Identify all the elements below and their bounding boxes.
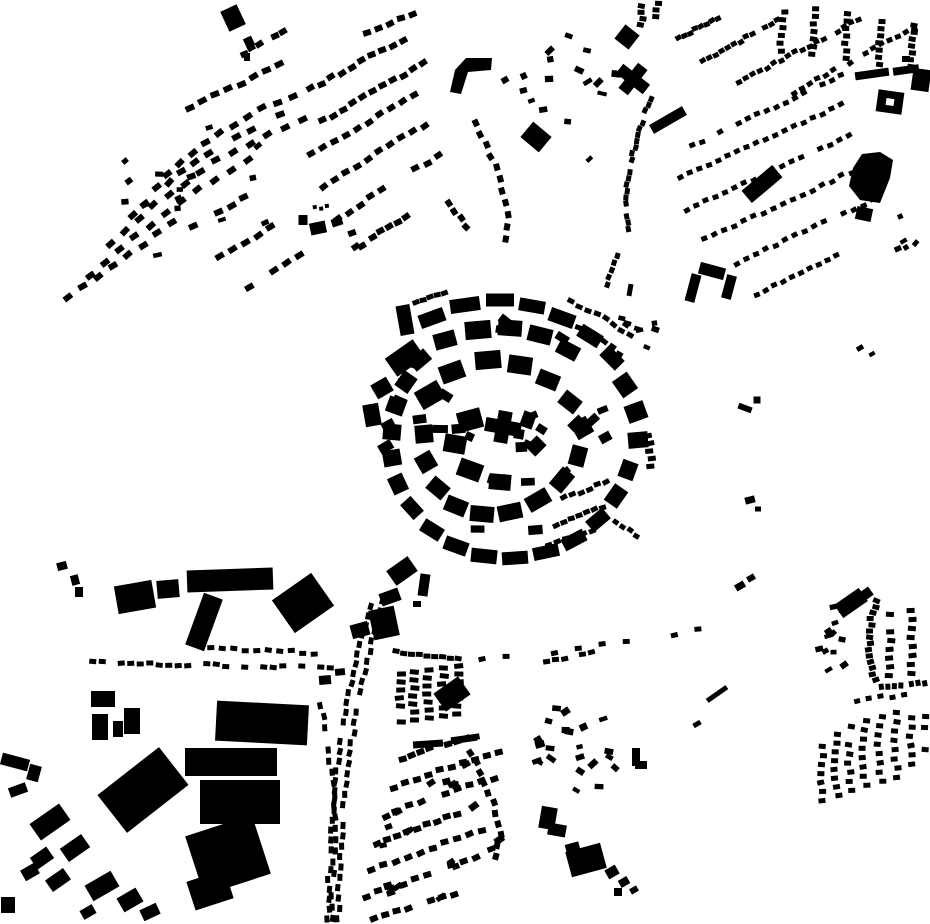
building (337, 69, 347, 78)
building (451, 734, 478, 745)
building (604, 483, 629, 509)
building (535, 368, 561, 391)
building (810, 36, 818, 42)
building (744, 495, 755, 504)
building (799, 192, 806, 199)
building (568, 491, 576, 498)
building (330, 859, 335, 866)
building (860, 774, 867, 779)
building (712, 52, 720, 59)
building (396, 687, 405, 692)
building (845, 742, 853, 748)
building (240, 238, 251, 248)
building (326, 895, 332, 903)
building (375, 226, 385, 235)
building (139, 903, 160, 921)
building (874, 741, 881, 747)
building (454, 671, 463, 676)
building (353, 660, 360, 668)
building (824, 257, 831, 264)
building (788, 158, 795, 165)
building (241, 664, 248, 669)
building (243, 155, 254, 165)
building (902, 56, 910, 62)
building (583, 47, 592, 53)
building (423, 699, 432, 705)
building (599, 345, 624, 370)
building (812, 14, 819, 19)
building (624, 188, 630, 195)
building (452, 711, 461, 716)
building (350, 670, 356, 678)
building (177, 187, 183, 192)
building (909, 725, 916, 730)
building (597, 405, 609, 415)
building (906, 733, 913, 739)
building (872, 604, 880, 611)
building (855, 68, 890, 81)
building (564, 728, 574, 736)
building (560, 519, 568, 526)
building (833, 784, 841, 790)
building (867, 640, 875, 646)
building (724, 152, 731, 159)
building (200, 138, 211, 147)
building (635, 132, 641, 139)
building (497, 319, 522, 337)
building (831, 620, 839, 626)
building (340, 832, 346, 840)
building (902, 28, 910, 35)
building (773, 103, 781, 110)
building (819, 789, 826, 794)
building (205, 124, 213, 131)
building (305, 83, 315, 92)
building (567, 297, 575, 305)
building (602, 314, 611, 322)
building (875, 40, 883, 46)
building (808, 51, 815, 57)
building (572, 787, 580, 794)
building (414, 450, 439, 475)
building (885, 646, 893, 652)
building (634, 138, 640, 145)
building (893, 719, 901, 725)
building (626, 284, 633, 297)
building (439, 654, 446, 660)
building (608, 266, 615, 273)
building (230, 646, 237, 652)
building (866, 659, 874, 666)
building (502, 235, 509, 243)
building (908, 43, 916, 49)
building (746, 573, 756, 582)
buildings-layer (0, 1, 930, 923)
building (215, 701, 309, 746)
building (358, 677, 365, 685)
building (416, 748, 426, 756)
building (623, 639, 630, 644)
building (368, 87, 378, 96)
building (831, 650, 837, 655)
building (121, 157, 129, 165)
building (876, 48, 883, 53)
building (875, 54, 883, 60)
building (734, 580, 746, 591)
building (8, 782, 28, 798)
building (710, 231, 718, 238)
building (718, 47, 726, 54)
building (356, 56, 366, 65)
building (464, 320, 491, 340)
building (720, 227, 727, 234)
building (262, 130, 273, 140)
building (706, 685, 729, 703)
building (185, 103, 196, 112)
building (575, 512, 583, 519)
building (575, 766, 585, 776)
building (200, 780, 280, 824)
building (400, 496, 424, 520)
building (26, 764, 42, 783)
building (779, 278, 787, 285)
building (799, 47, 807, 54)
building (598, 431, 613, 445)
building (298, 663, 305, 668)
building (413, 739, 443, 748)
building (396, 14, 405, 22)
building (418, 58, 428, 67)
building (272, 573, 334, 633)
building (99, 659, 106, 664)
building (907, 742, 915, 748)
building (443, 494, 469, 517)
building (207, 645, 214, 650)
building (374, 24, 384, 32)
building (505, 211, 512, 219)
building (338, 863, 343, 870)
building (502, 199, 510, 207)
building (781, 236, 789, 243)
building (367, 602, 374, 610)
building (419, 518, 445, 542)
building (503, 654, 510, 659)
building (346, 749, 353, 757)
building (341, 718, 346, 725)
building (689, 142, 696, 149)
building (891, 747, 898, 753)
building (604, 865, 619, 880)
building (412, 299, 420, 306)
building (846, 751, 854, 757)
building (345, 689, 351, 697)
building (127, 661, 134, 666)
building (365, 191, 375, 200)
building (574, 65, 585, 74)
building (452, 835, 461, 843)
building (752, 251, 759, 258)
building (357, 688, 363, 696)
building (837, 72, 844, 79)
building (317, 115, 327, 124)
building (261, 66, 272, 75)
building (855, 206, 873, 222)
building (885, 655, 893, 661)
building (129, 231, 140, 241)
building (828, 178, 836, 185)
building (294, 250, 305, 260)
building (587, 758, 598, 769)
building (810, 29, 818, 35)
building (340, 822, 345, 829)
building (635, 761, 647, 769)
building (386, 556, 418, 586)
building (339, 843, 344, 850)
building (352, 124, 362, 134)
building (770, 205, 777, 212)
building (197, 96, 208, 105)
building (342, 791, 347, 798)
building (844, 761, 851, 766)
building (389, 784, 398, 792)
building (911, 30, 918, 36)
building (349, 621, 370, 639)
building (545, 76, 554, 83)
building (716, 128, 724, 135)
building (490, 798, 498, 807)
building (275, 110, 286, 119)
building (756, 67, 764, 74)
building (162, 169, 173, 179)
building (859, 755, 866, 760)
building (545, 745, 554, 751)
building (715, 157, 722, 164)
building (410, 685, 419, 691)
building (842, 26, 849, 31)
building (740, 179, 748, 186)
building (412, 414, 426, 424)
building (493, 410, 512, 444)
building (599, 715, 608, 722)
building (188, 148, 199, 158)
building (409, 90, 419, 99)
building (557, 390, 583, 415)
building (502, 551, 529, 566)
building (387, 472, 409, 495)
building (831, 758, 838, 763)
building (374, 109, 384, 119)
building (288, 648, 295, 653)
building (585, 486, 593, 493)
building (701, 235, 708, 242)
building (781, 9, 788, 14)
building (269, 266, 280, 276)
building (229, 121, 240, 131)
building (568, 444, 589, 467)
building (423, 675, 432, 681)
building (500, 76, 509, 85)
building (483, 140, 491, 149)
building (410, 709, 419, 715)
building (629, 885, 639, 894)
building (754, 397, 761, 404)
building (868, 351, 875, 357)
building (92, 714, 108, 740)
building (413, 601, 421, 607)
building (212, 661, 220, 667)
building (362, 893, 372, 901)
building (842, 55, 849, 61)
building (546, 754, 557, 764)
building (749, 30, 757, 37)
building (368, 606, 400, 641)
building (908, 36, 916, 42)
building (381, 911, 390, 919)
building (712, 194, 719, 201)
building (543, 659, 551, 665)
building (865, 695, 872, 701)
building (244, 53, 250, 61)
building (30, 803, 71, 840)
building (484, 789, 492, 797)
building (524, 487, 553, 513)
building (253, 648, 260, 653)
building (379, 861, 388, 869)
building (564, 118, 571, 124)
building (345, 208, 355, 218)
building (469, 505, 494, 523)
building (439, 713, 448, 719)
building (114, 580, 156, 614)
building (210, 90, 221, 99)
building (321, 712, 328, 720)
building (626, 175, 632, 182)
building (344, 770, 350, 778)
building (872, 597, 880, 604)
building (593, 481, 601, 488)
building (432, 818, 442, 827)
building (326, 72, 336, 81)
building (486, 294, 514, 307)
building (845, 132, 853, 139)
building (333, 825, 338, 832)
building (886, 664, 895, 670)
building (539, 106, 548, 113)
building (612, 518, 620, 526)
building (330, 175, 340, 184)
building (575, 646, 582, 652)
building (431, 654, 438, 659)
building (443, 433, 468, 455)
building (352, 729, 358, 737)
building (824, 666, 833, 673)
building (838, 636, 846, 643)
building (623, 200, 629, 207)
building (819, 111, 827, 118)
building (859, 746, 866, 751)
building (327, 665, 334, 670)
building (855, 16, 862, 23)
building (893, 775, 901, 781)
building (401, 212, 411, 222)
building (218, 217, 227, 223)
building (740, 217, 748, 224)
building (362, 668, 369, 676)
building (604, 748, 614, 755)
building (752, 139, 760, 146)
building (818, 181, 826, 188)
building (424, 667, 433, 673)
building (118, 660, 125, 666)
building (363, 154, 373, 164)
building (737, 403, 752, 413)
building (868, 671, 876, 677)
building (331, 807, 336, 814)
building (174, 158, 185, 169)
building (450, 207, 459, 216)
building (492, 810, 499, 818)
building (772, 132, 779, 139)
building (874, 732, 882, 738)
building (349, 679, 356, 687)
building (797, 154, 804, 161)
building (762, 287, 770, 294)
building (414, 424, 434, 444)
building (189, 157, 200, 167)
building (441, 790, 450, 798)
building (618, 315, 626, 321)
building (886, 612, 894, 617)
building (779, 200, 787, 207)
building (85, 271, 96, 281)
building (414, 380, 447, 410)
building (377, 185, 387, 194)
building (575, 753, 585, 761)
building (404, 904, 414, 913)
building (440, 673, 449, 679)
building (652, 14, 659, 20)
building (891, 728, 898, 733)
building (575, 303, 583, 310)
building (381, 812, 391, 821)
building (332, 777, 338, 785)
building (148, 199, 159, 210)
building (610, 763, 619, 772)
building (866, 628, 873, 633)
building (151, 228, 162, 238)
building (278, 27, 288, 36)
building (733, 148, 741, 155)
building (810, 21, 817, 26)
building (898, 682, 903, 688)
building (503, 223, 510, 231)
building (75, 587, 83, 597)
building (618, 876, 631, 888)
building (648, 456, 657, 462)
building (105, 239, 116, 249)
building (63, 292, 74, 302)
building (493, 163, 501, 171)
building (351, 718, 357, 726)
building (921, 747, 928, 753)
building (347, 98, 357, 107)
building (328, 826, 333, 833)
building (423, 159, 433, 168)
building (648, 95, 655, 102)
building (306, 149, 316, 158)
building (192, 184, 203, 194)
building (897, 213, 904, 220)
